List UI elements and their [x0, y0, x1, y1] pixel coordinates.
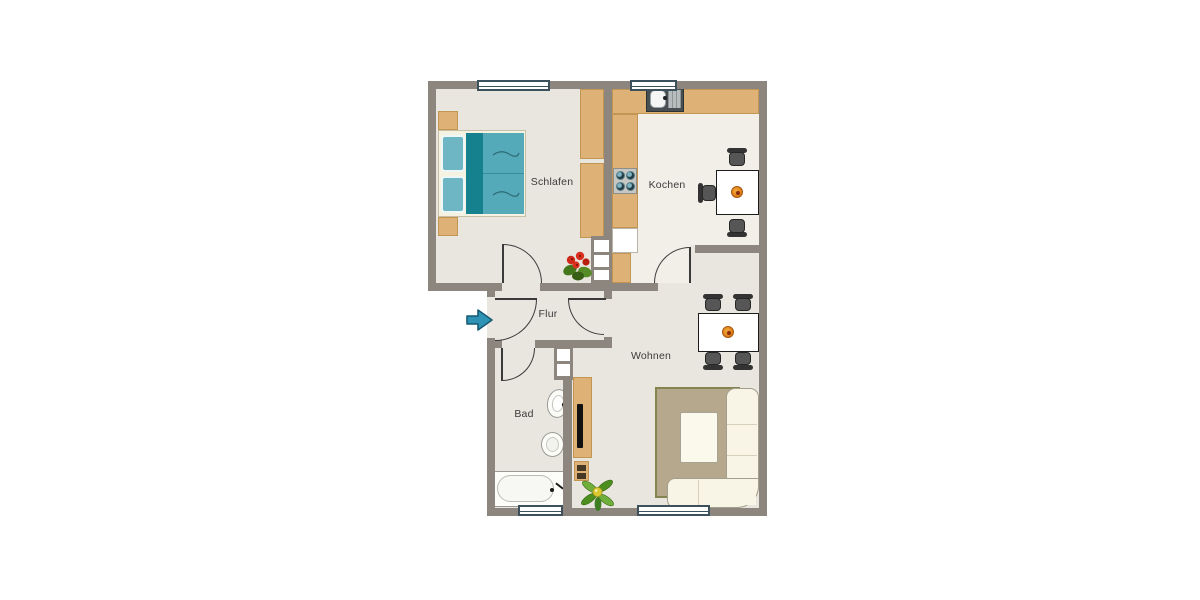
green-plant-icon — [580, 473, 616, 511]
wall-segment — [759, 81, 767, 516]
fruit-bowl-icon — [731, 186, 743, 198]
window-bedroom — [477, 80, 550, 91]
nightstand-bottom — [438, 217, 458, 236]
shaft-cell — [594, 255, 609, 267]
room-label-schlafen: Schlafen — [507, 176, 597, 188]
toilet-icon — [541, 432, 564, 457]
kitchen-counter-top — [612, 89, 759, 114]
wall-segment — [540, 283, 658, 291]
bed-duvet — [483, 133, 524, 214]
shaft-cell — [594, 270, 609, 280]
sofa-corner — [728, 480, 756, 505]
shaft-cell — [557, 349, 570, 361]
wardrobe-lower — [580, 163, 604, 238]
red-plant-icon — [561, 247, 595, 283]
chair — [735, 298, 751, 311]
nightstand-top — [438, 111, 458, 130]
bathtub-icon — [492, 471, 567, 507]
wall-segment — [487, 338, 495, 508]
chair — [705, 352, 721, 365]
room-label-bad: Bad — [496, 408, 552, 420]
wall-segment — [695, 245, 767, 253]
shaft-cell — [557, 364, 570, 376]
sofa-seam — [698, 480, 699, 506]
floor-plan: Schlafen Kochen Flur Bad Wohnen — [0, 0, 1200, 600]
wall-segment — [535, 340, 612, 348]
wall-segment — [495, 340, 502, 348]
room-label-kochen: Kochen — [628, 179, 706, 191]
bed-headband — [466, 133, 483, 214]
tv-icon — [577, 404, 583, 448]
kitchen-appliance — [612, 228, 638, 253]
wall-segment — [428, 81, 436, 291]
wall-segment — [487, 283, 495, 297]
coffee-table — [680, 412, 718, 463]
room-label-flur: Flur — [520, 308, 576, 320]
bed-pillow-left — [441, 135, 465, 172]
chair-back — [733, 365, 753, 370]
bed-pillow-right — [441, 176, 465, 213]
shaft-cell — [594, 240, 609, 252]
chair — [705, 298, 721, 311]
fruit-bowl-icon — [722, 326, 734, 338]
sofa-seam — [727, 455, 757, 456]
window-bathroom — [518, 505, 563, 516]
entrance-arrow-icon — [466, 307, 494, 333]
wardrobe-upper — [580, 89, 604, 159]
chair — [729, 152, 745, 166]
window-living — [637, 505, 710, 516]
room-label-wohnen: Wohnen — [613, 350, 689, 362]
chair — [729, 219, 745, 233]
sofa-seam — [727, 424, 757, 425]
chair-back — [703, 365, 723, 370]
kitchen-counter-lower — [612, 253, 631, 283]
chair — [735, 352, 751, 365]
window-kitchen — [630, 80, 677, 91]
